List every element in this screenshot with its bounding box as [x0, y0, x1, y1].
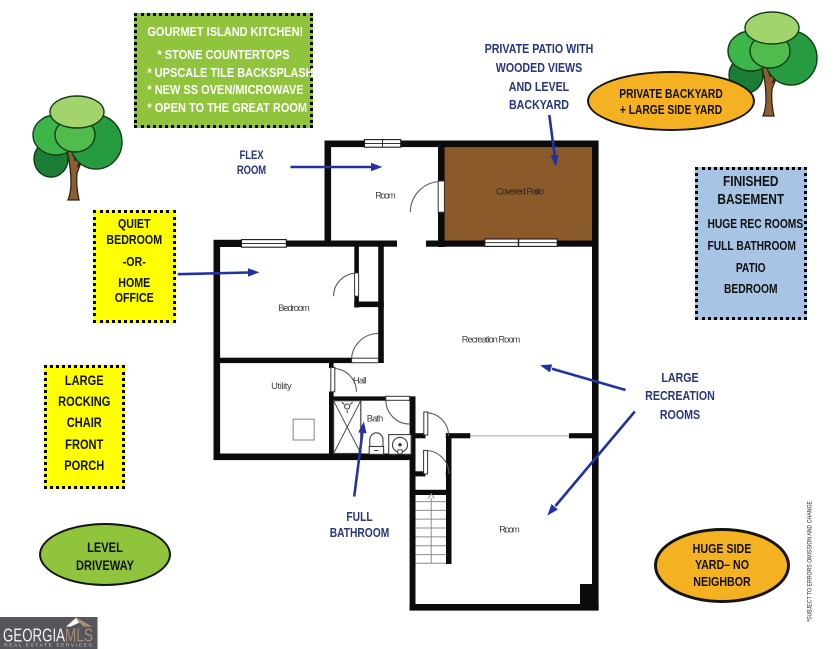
svg-text:Bedroom: Bedroom [278, 303, 310, 313]
svg-text:Covered Patio: Covered Patio [496, 187, 544, 197]
svg-text:Recreation Room: Recreation Room [462, 334, 521, 344]
svg-text:Room: Room [375, 190, 396, 200]
svg-text:Bath: Bath [367, 414, 384, 424]
svg-text:*SUBJECT TO ERRORS OMISSION AN: *SUBJECT TO ERRORS OMISSION AND CHANGE [807, 501, 814, 622]
svg-text:Utility: Utility [271, 381, 292, 391]
svg-text:Hall: Hall [353, 376, 367, 386]
svg-text:REAL ESTATE SERVICES: REAL ESTATE SERVICES [4, 642, 93, 648]
svg-text:Room: Room [499, 524, 520, 534]
